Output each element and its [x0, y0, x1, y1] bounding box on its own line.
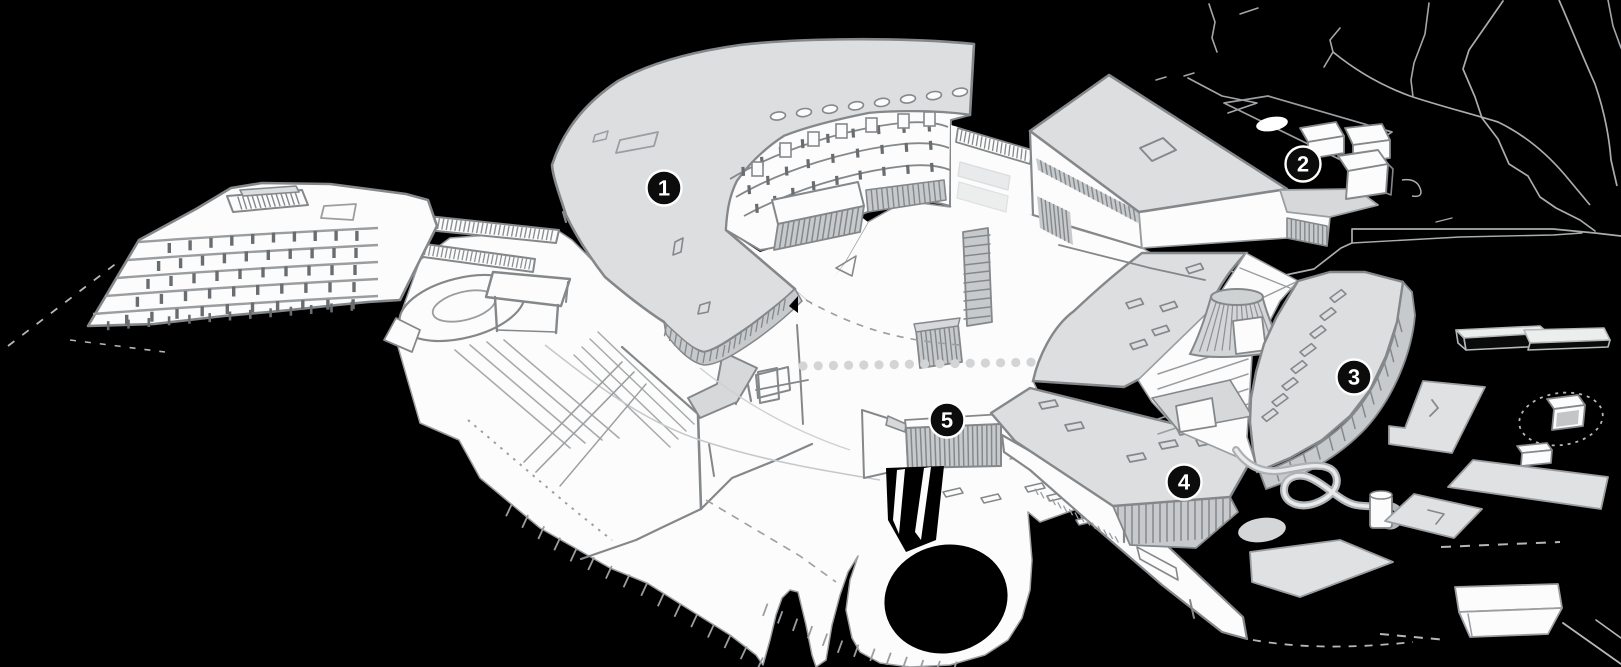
svg-text:5: 5 [941, 408, 953, 433]
svg-text:3: 3 [1348, 365, 1360, 390]
svg-text:2: 2 [1297, 152, 1309, 177]
svg-text:4: 4 [1178, 470, 1191, 495]
svg-text:1: 1 [658, 176, 670, 201]
